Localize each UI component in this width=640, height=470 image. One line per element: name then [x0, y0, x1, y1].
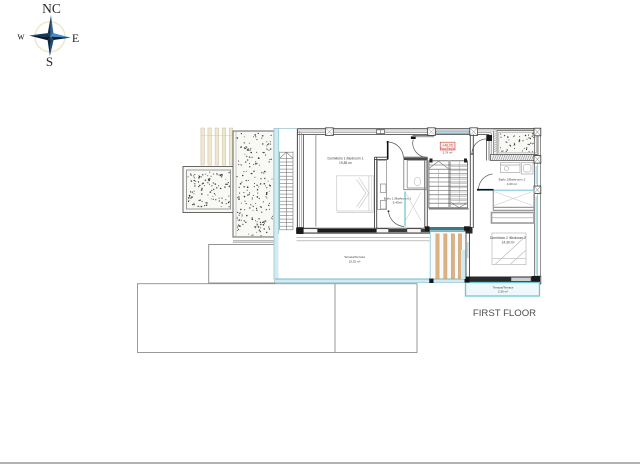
svg-text:14,30 m²: 14,30 m² [501, 241, 515, 245]
svg-text:Dormitorio 1 /Bedroom 1: Dormitorio 1 /Bedroom 1 [328, 157, 364, 161]
svg-text:19,25 m²: 19,25 m² [349, 259, 361, 263]
svg-text:19,85 m²: 19,85 m² [339, 161, 353, 165]
svg-text:w: w [17, 32, 25, 43]
svg-text:5,45m²: 5,45m² [393, 200, 403, 204]
svg-text:2,30 m²: 2,30 m² [498, 289, 508, 293]
svg-text:Dormitorio 2 /Bedroom 2: Dormitorio 2 /Bedroom 2 [490, 236, 526, 240]
svg-text:NC: NC [42, 1, 61, 16]
svg-text:4,00 m²: 4,00 m² [507, 182, 518, 186]
svg-text:2,76 m²: 2,76 m² [443, 150, 453, 154]
svg-text:FIRST FLOOR: FIRST FLOOR [473, 308, 536, 319]
svg-text:S: S [46, 54, 53, 69]
svg-text:E: E [72, 31, 79, 45]
